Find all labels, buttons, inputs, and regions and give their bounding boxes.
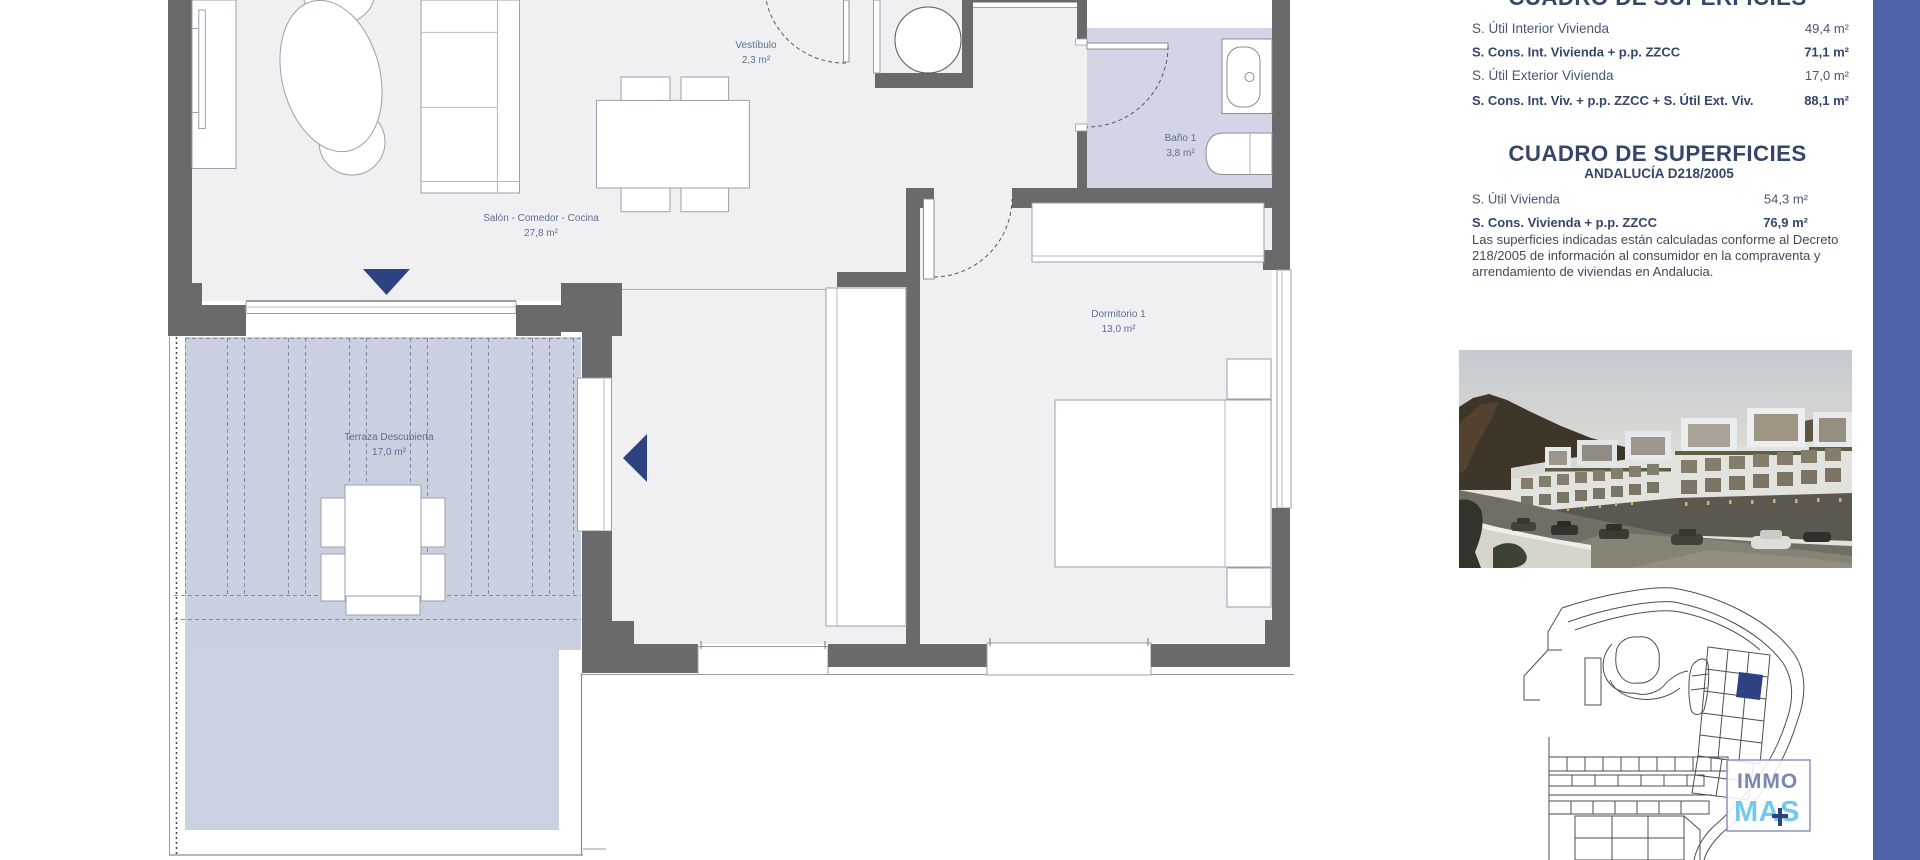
svg-text:S. Cons. Int. Viv. + p.p. ZZCC: S. Cons. Int. Viv. + p.p. ZZCC + S. Útil… xyxy=(1472,93,1753,108)
svg-text:MAS: MAS xyxy=(1734,796,1800,828)
svg-text:Salón - Comedor - Cocina: Salón - Comedor - Cocina xyxy=(483,213,599,224)
svg-text:49,4 m²: 49,4 m² xyxy=(1805,21,1850,36)
svg-text:S. Útil Exterior Vivienda: S. Útil Exterior Vivienda xyxy=(1472,68,1614,83)
svg-text:17,0 m²: 17,0 m² xyxy=(372,447,407,458)
svg-text:CUADRO DE SUPERFICIES: CUADRO DE SUPERFICIES xyxy=(1508,0,1806,10)
svg-text:arrendamiento de viviendas en: arrendamiento de viviendas en Andalucia. xyxy=(1472,264,1713,279)
svg-text:S. Útil Vivienda: S. Útil Vivienda xyxy=(1472,192,1561,207)
svg-text:71,1 m²: 71,1 m² xyxy=(1804,45,1849,60)
svg-text:27,8 m²: 27,8 m² xyxy=(524,228,559,239)
svg-text:3,8 m²: 3,8 m² xyxy=(1166,148,1195,159)
svg-text:CUADRO DE SUPERFICIES: CUADRO DE SUPERFICIES xyxy=(1508,141,1806,166)
svg-text:Dormitorio 1: Dormitorio 1 xyxy=(1091,309,1146,320)
svg-text:Terraza Descubierta: Terraza Descubierta xyxy=(344,432,434,443)
svg-text:88,1 m²: 88,1 m² xyxy=(1804,93,1849,108)
svg-text:2,3 m²: 2,3 m² xyxy=(742,55,771,66)
svg-text:Las superficies indicadas está: Las superficies indicadas están calculad… xyxy=(1472,232,1838,247)
svg-text:IMMO: IMMO xyxy=(1737,770,1798,793)
svg-text:54,3 m²: 54,3 m² xyxy=(1764,192,1809,207)
svg-text:Baño 1: Baño 1 xyxy=(1165,133,1197,144)
svg-text:13,0 m²: 13,0 m² xyxy=(1102,324,1137,335)
svg-text:Vestíbulo: Vestíbulo xyxy=(735,40,777,51)
svg-text:218/2005 de información al con: 218/2005 de información al consumidor en… xyxy=(1472,248,1821,263)
svg-text:S. Útil Interior Vivienda: S. Útil Interior Vivienda xyxy=(1472,21,1610,36)
svg-text:17,0 m²: 17,0 m² xyxy=(1805,68,1850,83)
svg-text:S. Cons. Int. Vivienda + p.p.: S. Cons. Int. Vivienda + p.p. ZZCC xyxy=(1472,45,1681,60)
svg-text:76,9 m²: 76,9 m² xyxy=(1763,215,1808,230)
svg-text:ANDALUCÍA D218/2005: ANDALUCÍA D218/2005 xyxy=(1584,166,1734,181)
svg-text:S. Cons. Vivienda + p.p. ZZCC: S. Cons. Vivienda + p.p. ZZCC xyxy=(1472,215,1658,230)
